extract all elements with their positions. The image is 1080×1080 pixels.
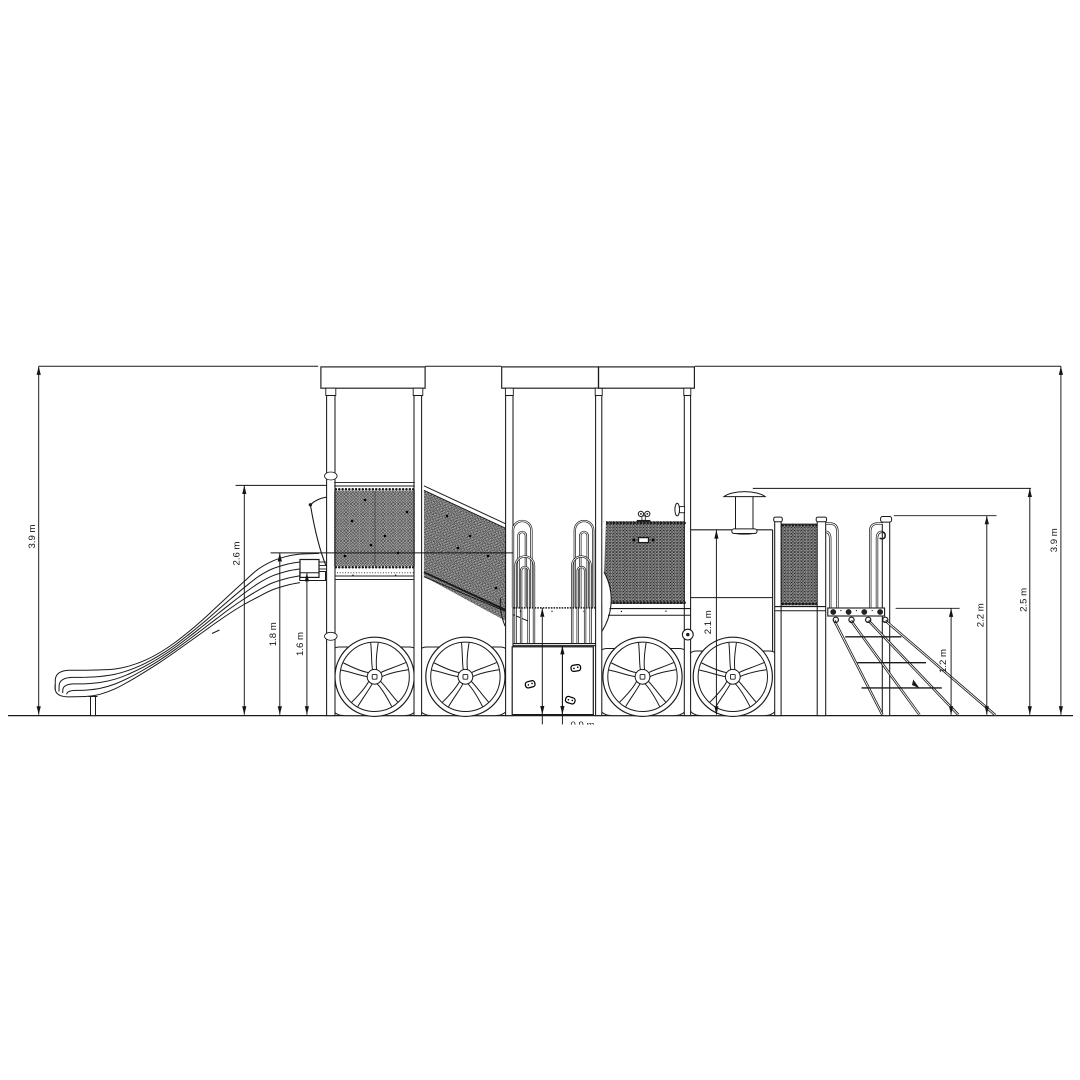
svg-text:1.8 m: 1.8 m	[268, 622, 279, 646]
svg-text:3.9 m: 3.9 m	[27, 524, 38, 548]
svg-text:1.2 m: 1.2 m	[938, 649, 949, 673]
svg-text:1.6 m: 1.6 m	[295, 632, 306, 656]
svg-text:2.5 m: 2.5 m	[1018, 588, 1029, 612]
svg-text:2.2 m: 2.2 m	[976, 603, 987, 627]
svg-text:2.6 m: 2.6 m	[231, 541, 242, 565]
svg-text:3.9 m: 3.9 m	[1049, 528, 1060, 552]
svg-text:2.1 m: 2.1 m	[703, 610, 714, 634]
svg-text:0.9 m: 0.9 m	[571, 720, 595, 731]
